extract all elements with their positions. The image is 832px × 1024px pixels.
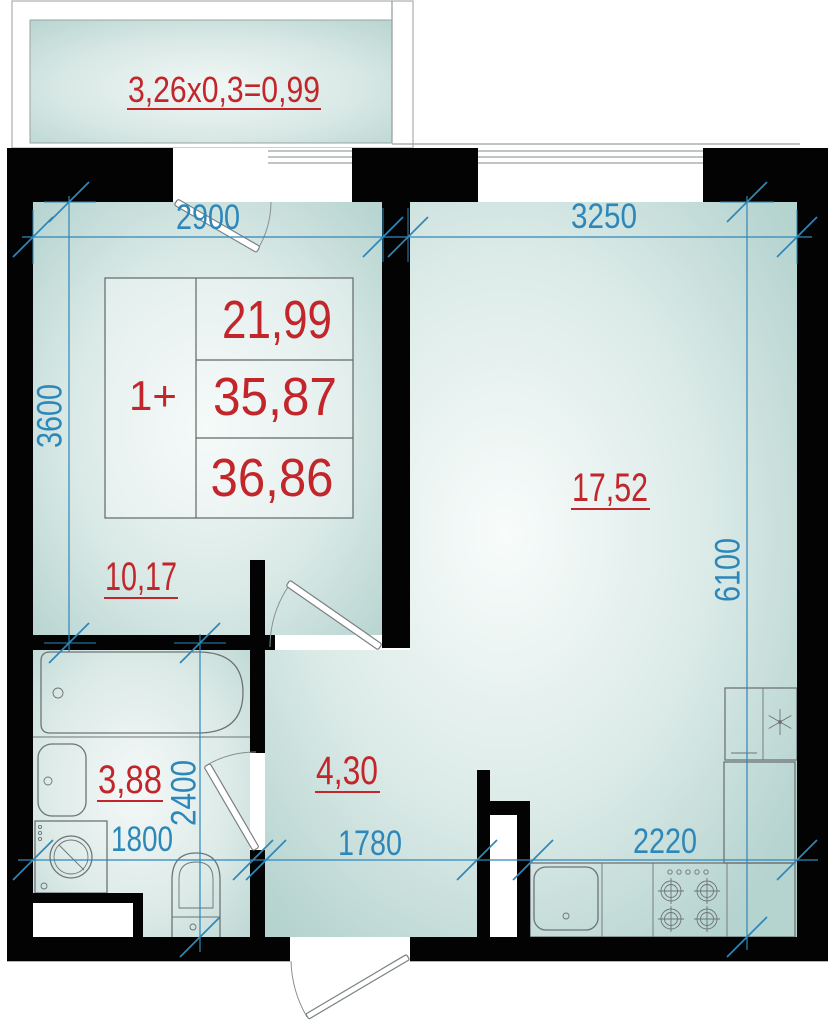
niche-interior: [33, 903, 133, 937]
hallway-area-label: 4,30: [316, 749, 378, 793]
wall-bathroom-right-upper: [250, 650, 265, 753]
shaft-interior: [490, 815, 517, 937]
wall-right: [797, 148, 828, 962]
living-area-label: 17,52: [572, 466, 648, 510]
unit-area-value-3: 36,86: [211, 448, 334, 508]
unit-area-value-2: 35,87: [213, 367, 337, 427]
dim-hallway-width: 1780: [338, 824, 402, 863]
dim-living-depth: 6100: [709, 538, 748, 602]
wall-top-middle: [352, 148, 478, 202]
wall-stub-bedroom: [250, 560, 265, 635]
bathroom-area-label: 3,88: [98, 758, 162, 802]
dim-living-width: 3250: [571, 197, 637, 236]
dim-bedroom-width: 2900: [176, 198, 240, 237]
balcony-area-formula: 3,26x0,3=0,99: [128, 69, 320, 110]
floor-plan-drawing: 3,26x0,3=0,99 2900 3250 3600 6100 2400 1…: [0, 0, 832, 1024]
dim-bathroom-depth: 2400: [165, 760, 204, 826]
dim-bedroom-depth: 3600: [31, 384, 70, 448]
unit-type-label: 1+: [129, 372, 177, 419]
niche-wall-top: [28, 893, 143, 903]
wall-left: [7, 148, 33, 962]
wall-bedroom-living-divider: [382, 202, 410, 648]
entrance-door-arc: [291, 961, 307, 1017]
dim-bathroom-width: 1800: [111, 820, 173, 859]
shaft-wall-top: [490, 801, 530, 815]
niche-wall-right: [133, 903, 143, 937]
entrance-door-opening: [290, 937, 410, 962]
balcony-door-opening: [173, 148, 268, 202]
snowflake-center: [778, 720, 782, 724]
wall-bottom-right: [410, 937, 828, 962]
bedroom-area-label: 10,17: [105, 555, 177, 599]
floor-plan-page: 3,26x0,3=0,99 2900 3250 3600 6100 2400 1…: [0, 0, 832, 1024]
wall-bottom-left: [7, 937, 290, 962]
bedroom-window-opening: [268, 148, 352, 202]
entrance-door-leaf: [306, 954, 410, 1019]
shaft-wall-right: [517, 815, 530, 937]
dim-kitchen-width: 2220: [633, 822, 697, 861]
living-window-opening: [478, 148, 703, 202]
unit-area-value-1: 21,99: [222, 290, 332, 350]
